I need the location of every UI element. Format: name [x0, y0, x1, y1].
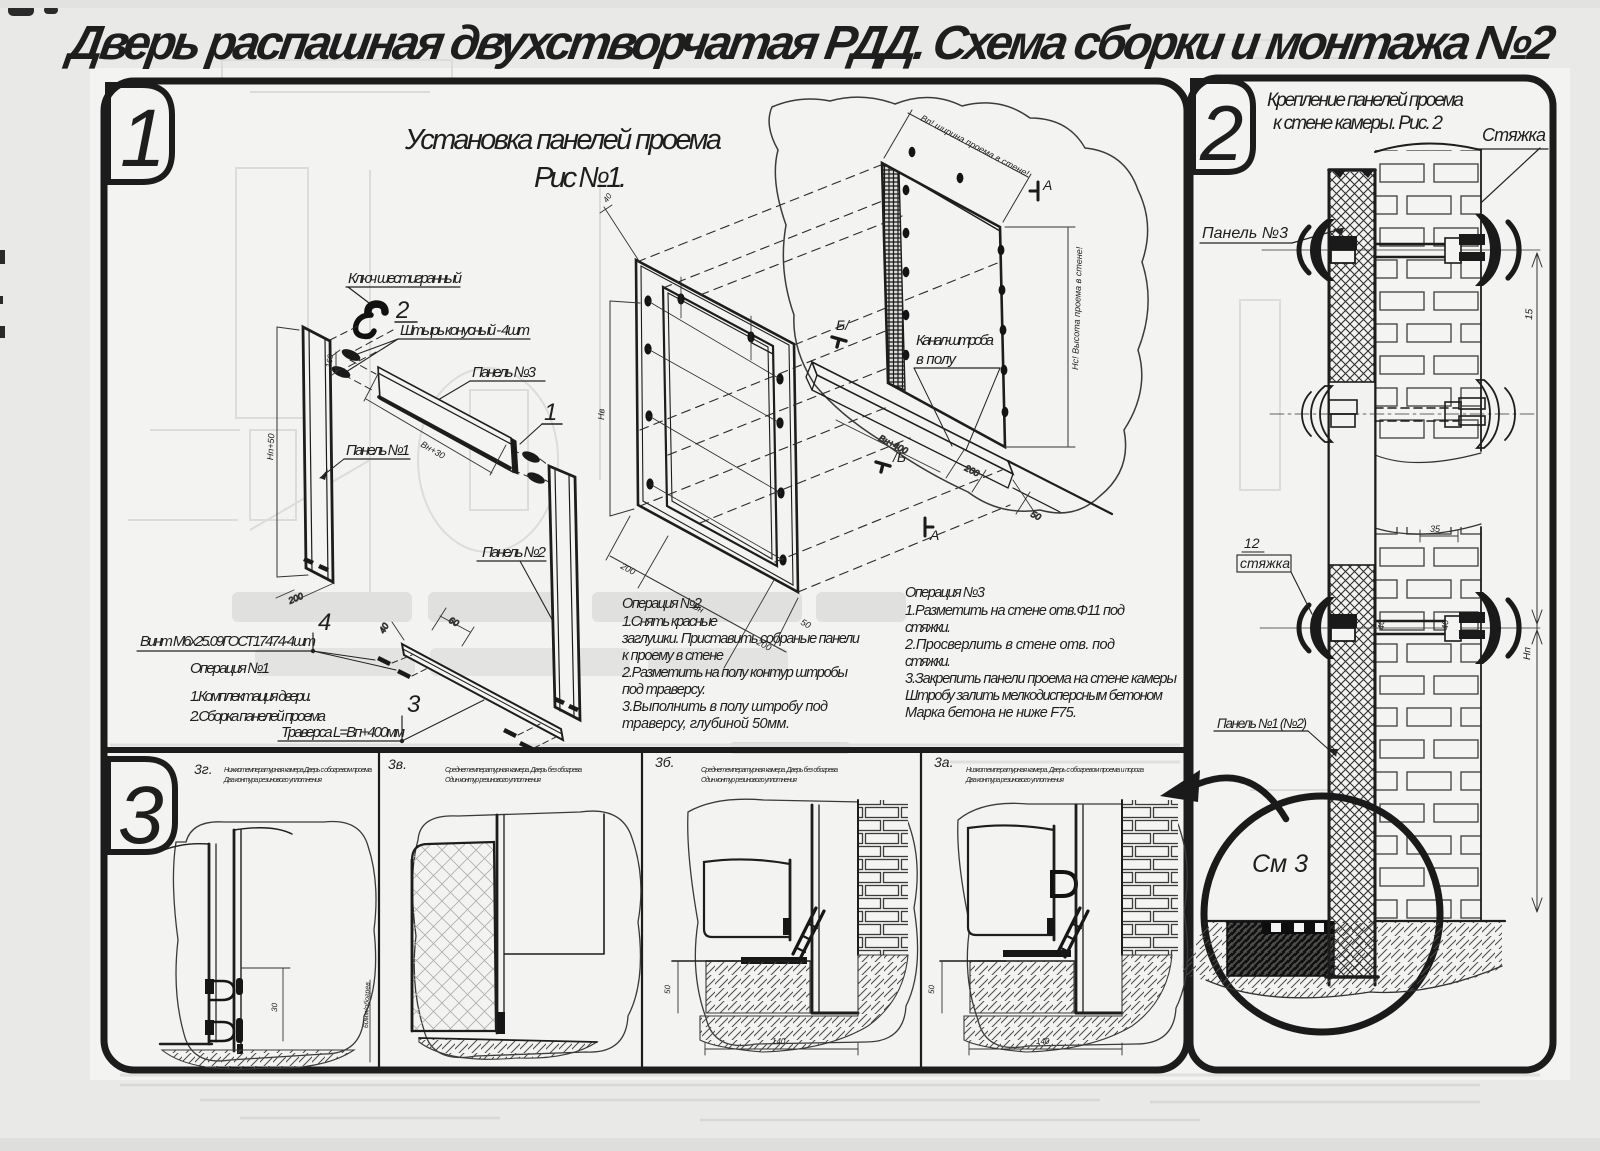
svg-text:2: 2	[395, 297, 409, 324]
svg-text:под траверсу.: под траверсу.	[622, 682, 706, 698]
svg-text:3.Выполнить в полу штробу под: 3.Выполнить в полу штробу под	[622, 699, 828, 715]
svg-text:Марка бетона не ниже F75.: Марка бетона не ниже F75.	[905, 705, 1077, 721]
svg-text:15: 15	[1524, 308, 1535, 320]
svg-text:40: 40	[1440, 620, 1450, 630]
svg-text:1.Разметить на стене отв.Ф11 п: 1.Разметить на стене отв.Ф11 под	[905, 603, 1125, 619]
svg-text:Штробу залить мелкодисперсным: Штробу залить мелкодисперсным бетоном	[905, 688, 1163, 704]
svg-text:стяжки.: стяжки.	[905, 620, 951, 636]
svg-text:1.Снять красные: 1.Снять красные	[622, 614, 718, 630]
svg-text:Низкотемпературная камера. Две: Низкотемпературная камера. Дверь с обогр…	[966, 766, 1144, 774]
svg-text:Один контур резинового уплотне: Один контур резинового уплотнения	[445, 776, 541, 784]
svg-text:3г.: 3г.	[194, 761, 213, 777]
svg-text:Панель №3: Панель №3	[1202, 225, 1288, 242]
svg-text:Панель №2: Панель №2	[482, 544, 547, 561]
svg-text:Рис №1.: Рис №1.	[534, 162, 627, 194]
svg-text:стяжка: стяжка	[1240, 555, 1290, 571]
svg-text:3: 3	[407, 691, 421, 718]
svg-text:50: 50	[927, 984, 936, 994]
svg-text:А: А	[1042, 177, 1052, 193]
svg-text:Операция №3: Операция №3	[905, 585, 985, 601]
svg-text:1: 1	[120, 93, 166, 184]
svg-text:12: 12	[1244, 535, 1260, 551]
svg-text:Б/: Б/	[836, 317, 851, 333]
svg-text:50: 50	[663, 984, 672, 994]
svg-text:к стене камеры. Рис. 2: к стене камеры. Рис. 2	[1273, 113, 1443, 134]
svg-text:заглушки. Приставить собраные: заглушки. Приставить собраные панели	[621, 631, 860, 647]
svg-text:Нижкотемпературная камера.Двер: Нижкотемпературная камера.Дверь с обогре…	[224, 766, 372, 774]
svg-text:Стяжка: Стяжка	[1482, 125, 1546, 145]
svg-text:Ключ шестигранный: Ключ шестигранный	[348, 270, 463, 287]
svg-text:стяжки.: стяжки.	[905, 654, 951, 670]
svg-text:к проему в стене: к проему в стене	[622, 648, 724, 664]
svg-text:А: А	[929, 527, 939, 543]
svg-text:Среднетемпературная камера. Дв: Среднетемпературная камера. Дверь без об…	[445, 766, 582, 774]
svg-text:Нп: Нп	[1522, 647, 1533, 661]
svg-text:Два контура резинового уплотне: Два контура резинового уплотнения	[223, 777, 322, 784]
svg-text:3: 3	[118, 770, 164, 861]
svg-text:Винт М6х25.09ГОСТ17474-4шт: Винт М6х25.09ГОСТ17474-4шт	[140, 633, 316, 650]
svg-text:2.Просверлить в стене отв. по: 2.Просверлить в стене отв. под	[904, 637, 1115, 653]
svg-text:40: 40	[1376, 620, 1386, 630]
svg-text:Канал-штроба: Канал-штроба	[916, 332, 994, 349]
svg-text:1.Комплектация двери.: 1.Комплектация двери.	[190, 688, 312, 705]
svg-text:2.Сборка панелей проема: 2.Сборка панелей проема	[189, 708, 326, 725]
svg-text:60мм/обогрев: 60мм/обогрев	[362, 982, 372, 1029]
svg-text:Два контура резинового уплотне: Два контура резинового уплотнения	[965, 777, 1064, 784]
svg-text:3а.: 3а.	[934, 754, 953, 770]
svg-text:в полу: в полу	[916, 351, 958, 368]
svg-text:3.Закрепить панели проема на с: 3.Закрепить панели проема на стене камер…	[905, 671, 1177, 687]
svg-text:4: 4	[318, 609, 331, 636]
svg-text:Среднетемпературная камера. Дв: Среднетемпературная камера. Дверь без об…	[701, 766, 838, 774]
svg-text:140: 140	[1036, 1037, 1050, 1046]
svg-text:2.Разметить на полу контур штр: 2.Разметить на полу контур штробы	[621, 665, 848, 681]
svg-text:1: 1	[544, 399, 557, 426]
svg-text:Панель №1: Панель №1	[346, 442, 410, 459]
svg-text:Нп+50: Нп+50	[265, 433, 276, 460]
svg-text:Нв: Нв	[596, 408, 606, 420]
svg-text:траверсу, глубиной 50мм.: траверсу, глубиной 50мм.	[622, 716, 790, 732]
svg-text:Траверса L=Вп+400мм: Траверса L=Вп+400мм	[281, 724, 405, 741]
svg-text:Операция №2: Операция №2	[622, 596, 702, 612]
svg-text:Штырь конусный - 4шт: Штырь конусный - 4шт	[400, 322, 530, 339]
svg-text:Один контур резинового уплотне: Один контур резинового уплотнения	[701, 776, 797, 784]
svg-text:Установка панелей проема: Установка панелей проема	[404, 124, 722, 156]
svg-text:Панель №3: Панель №3	[472, 364, 537, 381]
svg-text:30: 30	[270, 1002, 279, 1012]
svg-text:35: 35	[1430, 524, 1441, 534]
svg-text:3б.: 3б.	[655, 754, 675, 770]
svg-text:140: 140	[772, 1037, 786, 1046]
svg-text:Операция №1: Операция №1	[190, 660, 270, 677]
svg-text:Дверь распашная двухстворчатая: Дверь распашная двухстворчатая РДД. Схем…	[61, 16, 1560, 70]
svg-text:См 3: См 3	[1252, 850, 1308, 878]
svg-text:2: 2	[1199, 89, 1243, 177]
svg-text:3в.: 3в.	[388, 756, 407, 772]
svg-text:Крепление панелей проема: Крепление панелей проема	[1267, 90, 1464, 111]
svg-text:Панель №1 (№2): Панель №1 (№2)	[1217, 716, 1307, 731]
